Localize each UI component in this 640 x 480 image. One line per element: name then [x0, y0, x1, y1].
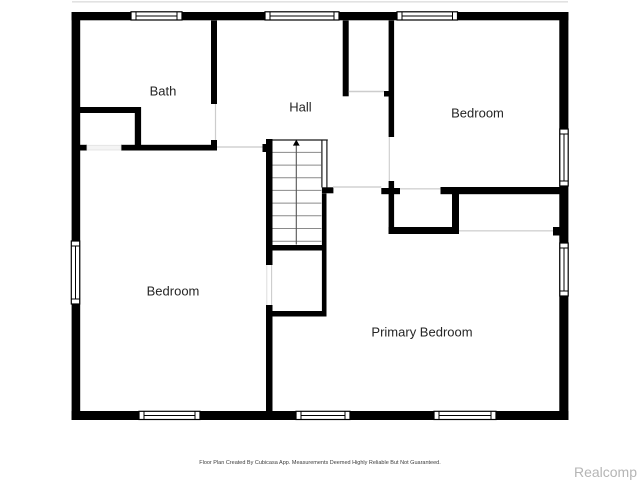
svg-text:Primary Bedroom: Primary Bedroom: [371, 325, 472, 340]
svg-text:Realcomp: Realcomp: [574, 464, 637, 480]
svg-text:Bedroom: Bedroom: [147, 284, 200, 299]
svg-text:Floor Plan Created By Cubicasa: Floor Plan Created By Cubicasa App. Meas…: [199, 460, 441, 466]
svg-text:Hall: Hall: [289, 100, 312, 115]
svg-text:Bath: Bath: [150, 84, 177, 99]
svg-text:Bedroom: Bedroom: [451, 106, 504, 121]
